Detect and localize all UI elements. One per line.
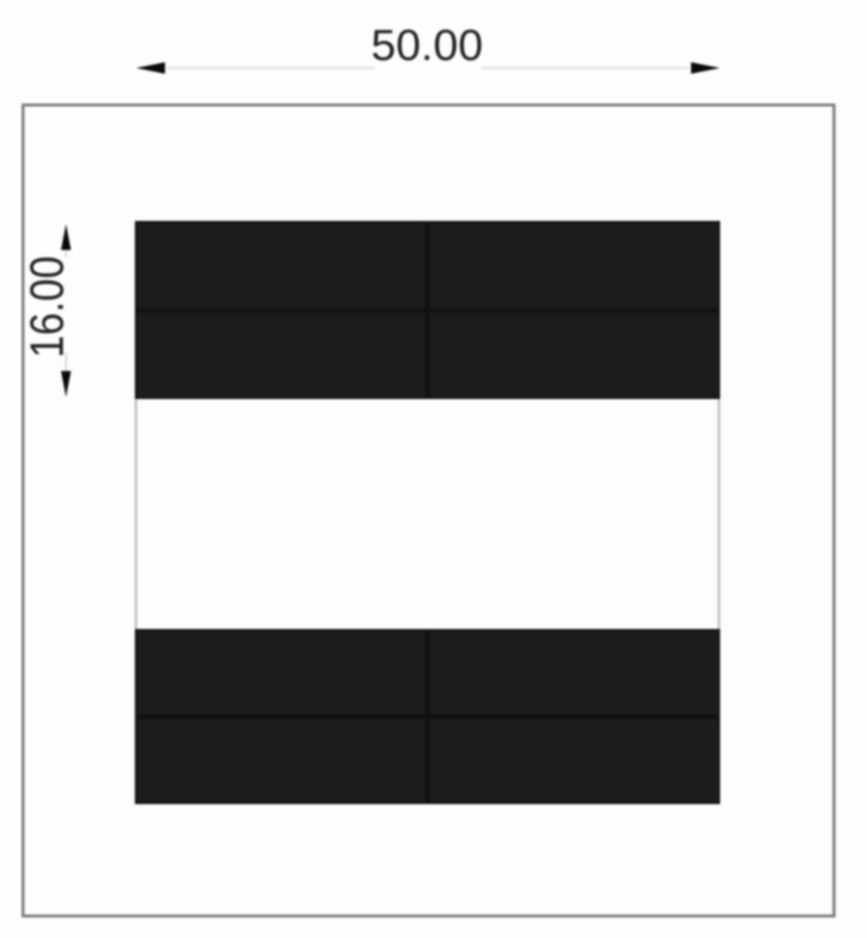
svg-text:16.00: 16.00 — [20, 256, 73, 358]
svg-text:50.00: 50.00 — [371, 21, 483, 70]
